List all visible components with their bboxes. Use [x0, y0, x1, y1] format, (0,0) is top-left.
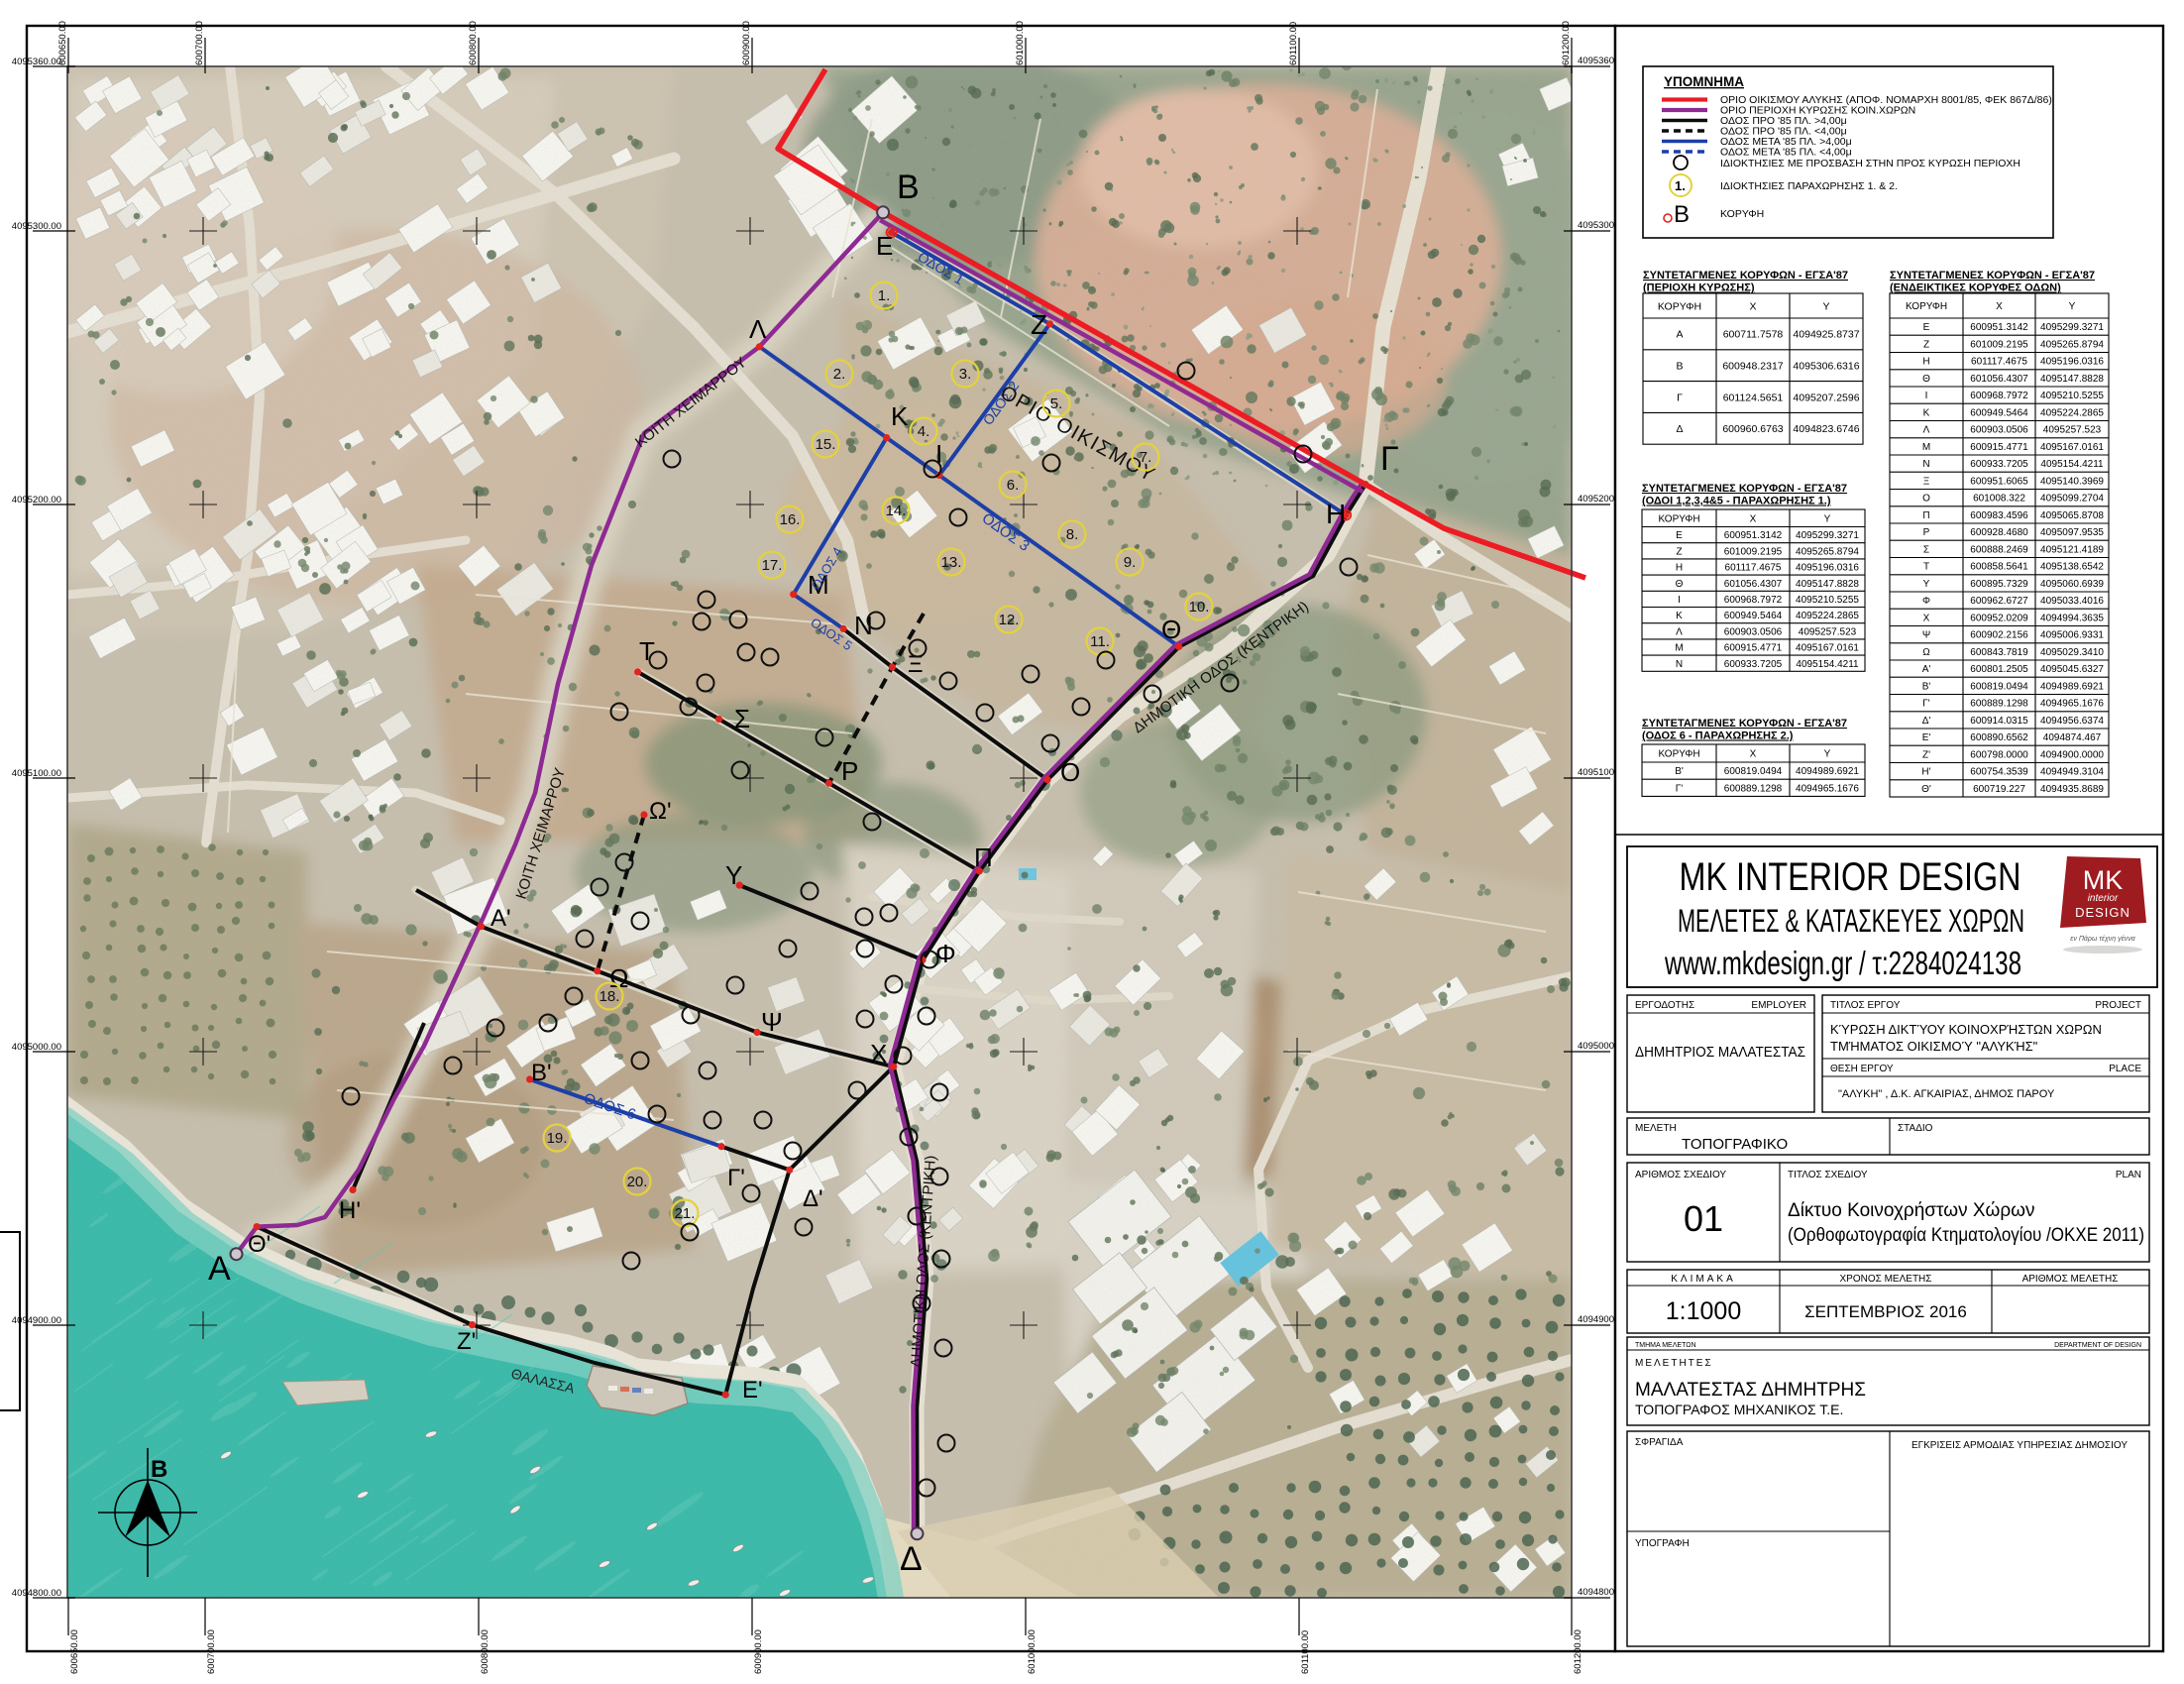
svg-text:600754.3539: 600754.3539 [1970, 767, 2028, 778]
svg-text:6.: 6. [1007, 477, 1020, 494]
svg-text:Y: Y [1822, 300, 1829, 312]
svg-text:Γ': Γ' [1676, 783, 1684, 794]
svg-text:MK INTERIOR DESIGN: MK INTERIOR DESIGN [1680, 855, 2021, 899]
svg-text:εν Πάρω τέχνη γέννα: εν Πάρω τέχνη γέννα [2070, 935, 2135, 943]
svg-text:Γ: Γ [1677, 392, 1683, 403]
svg-text:Ψ: Ψ [761, 1007, 783, 1037]
svg-text:Ζ: Ζ [1923, 340, 1929, 351]
svg-text:4094823.6746: 4094823.6746 [1793, 423, 1859, 435]
svg-text:600800.00: 600800.00 [480, 1629, 491, 1674]
svg-text:(ΠΕΡΙΟΧΗ ΚΥΡΩΣΗΣ): (ΠΕΡΙΟΧΗ ΚΥΡΩΣΗΣ) [1643, 282, 1755, 294]
svg-text:Β': Β' [1922, 682, 1931, 693]
svg-text:14.: 14. [886, 503, 907, 519]
svg-text:600819.0494: 600819.0494 [1724, 766, 1783, 777]
svg-text:4095099.2704: 4095099.2704 [2040, 494, 2104, 505]
svg-text:3.: 3. [959, 366, 972, 383]
svg-text:4095140.3969: 4095140.3969 [2040, 477, 2104, 488]
svg-text:4095100.00: 4095100.00 [12, 768, 61, 779]
svg-text:Υ: Υ [725, 860, 742, 890]
svg-text:600888.2469: 600888.2469 [1970, 545, 2028, 556]
svg-text:ΜΕΛΕΤΕΣ & ΚΑΤΑΣΚΕΥΕΣ ΧΩΡΩΝ: ΜΕΛΕΤΕΣ & ΚΑΤΑΣΚΕΥΕΣ ΧΩΡΩΝ [1678, 903, 2024, 939]
svg-text:4095210.5255: 4095210.5255 [2040, 391, 2104, 401]
svg-text:Τ: Τ [1923, 562, 1929, 573]
svg-text:Θ: Θ [1922, 374, 1930, 385]
svg-text:600949.5464: 600949.5464 [1970, 408, 2028, 419]
svg-text:4095207.2596: 4095207.2596 [1793, 392, 1859, 403]
svg-text:4095029.3410: 4095029.3410 [2040, 647, 2104, 658]
svg-text:Δ': Δ' [1922, 716, 1931, 727]
svg-text:ΚΟΡΥΦΗ: ΚΟΡΥΦΗ [1720, 208, 1764, 220]
svg-text:600895.7329: 600895.7329 [1970, 579, 2028, 590]
svg-text:600819.0494: 600819.0494 [1970, 682, 2028, 693]
svg-text:Ε: Ε [1676, 530, 1683, 541]
svg-text:Y: Y [1824, 513, 1831, 524]
svg-text:ΣΕΠΤΕΜΒΡΙΟΣ 2016: ΣΕΠΤΕΜΒΡΙΟΣ 2016 [1804, 1302, 1967, 1321]
svg-text:PLAN: PLAN [2116, 1170, 2141, 1180]
svg-text:4095224.2865: 4095224.2865 [2040, 408, 2104, 419]
svg-text:Α: Α [208, 1250, 231, 1288]
svg-text:4095033.4016: 4095033.4016 [2040, 596, 2104, 607]
svg-text:ΤΙΤΛΟΣ ΣΧΕΔΙΟΥ: ΤΙΤΛΟΣ ΣΧΕΔΙΟΥ [1788, 1170, 1868, 1180]
svg-text:600900.00: 600900.00 [741, 21, 752, 65]
svg-text:4095154.4211: 4095154.4211 [1796, 659, 1859, 670]
svg-text:Ι: Ι [1925, 391, 1928, 401]
svg-text:"ΑΛΥΚΗ" , Δ.Κ. ΑΓΚΑΙΡΙΑΣ, ΔΗΜΟ: "ΑΛΥΚΗ" , Δ.Κ. ΑΓΚΑΙΡΙΑΣ, ΔΗΜΟΣ ΠΑΡΟΥ [1838, 1088, 2055, 1100]
svg-text:ΤΙΤΛΟΣ ΕΡΓΟΥ: ΤΙΤΛΟΣ ΕΡΓΟΥ [1830, 1000, 1901, 1011]
svg-text:600928.4680: 600928.4680 [1970, 527, 2028, 538]
svg-text:Π: Π [1922, 510, 1929, 521]
svg-text:Ρ: Ρ [841, 756, 858, 786]
svg-text:X: X [1996, 301, 2003, 312]
svg-text:Γ': Γ' [1922, 699, 1930, 710]
svg-text:1.: 1. [1675, 178, 1686, 193]
svg-text:Β': Β' [531, 1060, 552, 1086]
svg-text:4095265.8794: 4095265.8794 [1796, 546, 1859, 557]
svg-text:601117.4675: 601117.4675 [1971, 357, 2027, 368]
svg-text:ΙΔΙΟΚΤΗΣΙΕΣ ΠΑΡΑΧΩΡΗΣΗΣ 1. & 2: ΙΔΙΟΚΤΗΣΙΕΣ ΠΑΡΑΧΩΡΗΣΗΣ 1. & 2. [1720, 180, 1898, 192]
svg-text:601124.5651: 601124.5651 [1723, 392, 1784, 403]
svg-text:600968.7972: 600968.7972 [1724, 595, 1783, 606]
svg-text:MK: MK [2083, 865, 2124, 895]
svg-text:Β': Β' [1675, 766, 1684, 777]
svg-text:4095045.6327: 4095045.6327 [2040, 664, 2104, 675]
svg-text:X: X [1750, 513, 1757, 524]
svg-text:Δ: Δ [900, 1540, 923, 1578]
svg-text:interior: interior [2088, 893, 2119, 904]
svg-text:600719.227: 600719.227 [1973, 784, 2025, 795]
svg-text:17.: 17. [762, 557, 783, 574]
svg-text:Α': Α' [491, 905, 511, 932]
svg-text:18.: 18. [600, 988, 620, 1005]
svg-text:Ξ: Ξ [1923, 477, 1930, 488]
svg-text:4095224.2865: 4095224.2865 [1796, 611, 1859, 621]
svg-text:600983.4596: 600983.4596 [1970, 510, 2028, 521]
svg-text:ΑΡΙΘΜΟΣ ΜΕΛΕΤΗΣ: ΑΡΙΘΜΟΣ ΜΕΛΕΤΗΣ [2022, 1274, 2119, 1285]
svg-text:Ζ': Ζ' [457, 1328, 476, 1355]
svg-text:Ω': Ω' [649, 798, 672, 825]
svg-text:Γ: Γ [1380, 440, 1399, 478]
svg-text:4094965.1676: 4094965.1676 [1796, 783, 1859, 794]
svg-text:4095299.3271: 4095299.3271 [1796, 530, 1859, 541]
svg-text:601009.2195: 601009.2195 [1970, 340, 2028, 351]
svg-text:600960.6763: 600960.6763 [1722, 423, 1783, 435]
svg-text:Θ': Θ' [248, 1231, 271, 1258]
svg-text:600902.2156: 600902.2156 [1970, 630, 2028, 641]
svg-text:600650.00: 600650.00 [69, 1629, 80, 1674]
svg-text:19.: 19. [547, 1130, 568, 1147]
svg-text:600915.4771: 600915.4771 [1724, 643, 1783, 654]
svg-text:4094900.0000: 4094900.0000 [2040, 750, 2104, 761]
svg-text:601056.4307: 601056.4307 [1970, 374, 2028, 385]
svg-text:600952.0209: 600952.0209 [1970, 614, 2028, 624]
svg-text:600711.7578: 600711.7578 [1723, 329, 1784, 341]
svg-text:4094956.6374: 4094956.6374 [2040, 716, 2104, 727]
svg-text:Γ': Γ' [727, 1165, 745, 1191]
svg-text:B: B [151, 1456, 167, 1483]
svg-text:ΥΠΟΓΡΑΦΗ: ΥΠΟΓΡΑΦΗ [1635, 1538, 1690, 1549]
svg-text:4095138.6542: 4095138.6542 [2040, 562, 2104, 573]
svg-text:ΣΥΝΤΕΤΑΓΜΕΝΕΣ ΚΟΡΥΦΩΝ - ΕΓΣΑ'8: ΣΥΝΤΕΤΑΓΜΕΝΕΣ ΚΟΡΥΦΩΝ - ΕΓΣΑ'87 [1890, 270, 2095, 281]
svg-text:600858.5641: 600858.5641 [1970, 562, 2028, 573]
svg-text:4094874.467: 4094874.467 [2043, 732, 2102, 743]
svg-text:11.: 11. [1090, 633, 1110, 650]
svg-text:Φ: Φ [935, 939, 956, 968]
svg-text:600951.6065: 600951.6065 [1970, 477, 2028, 488]
svg-text:ΤΜΉΜΑΤΟΣ ΟΙΚΙΣΜΟΎ "ΑΛΥΚΉΣ": ΤΜΉΜΑΤΟΣ ΟΙΚΙΣΜΟΎ "ΑΛΥΚΉΣ" [1830, 1039, 2038, 1054]
svg-text:ΚΎΡΩΣΗ ΔΙΚΤΎΟΥ ΚΟΙΝΟΧΡΉΣΤΩΝ ΧΩ: ΚΎΡΩΣΗ ΔΙΚΤΎΟΥ ΚΟΙΝΟΧΡΉΣΤΩΝ ΧΩΡΩΝ [1830, 1022, 2102, 1037]
svg-text:Δίκτυο Κοινοχρήστων Χώρων: Δίκτυο Κοινοχρήστων Χώρων [1788, 1200, 2035, 1221]
svg-text:(ΕΝΔΕΙΚΤΙΚΕΣ ΚΟΡΥΦΕΣ ΟΔΩΝ): (ΕΝΔΕΙΚΤΙΚΕΣ ΚΟΡΥΦΕΣ ΟΔΩΝ) [1890, 282, 2061, 294]
svg-text:Π: Π [974, 842, 993, 872]
svg-text:Ψ: Ψ [1922, 630, 1930, 641]
svg-text:Ρ: Ρ [1923, 527, 1930, 538]
svg-text:4095060.6939: 4095060.6939 [2040, 579, 2104, 590]
svg-text:Ζ: Ζ [1676, 546, 1682, 557]
svg-text:Ο: Ο [1060, 757, 1080, 787]
svg-text:601100.00: 601100.00 [1300, 1630, 1311, 1674]
svg-text:Σ: Σ [734, 704, 750, 733]
svg-text:600948.2317: 600948.2317 [1722, 361, 1783, 373]
svg-text:4094800.00: 4094800.00 [12, 1588, 61, 1599]
svg-text:4095167.0161: 4095167.0161 [2040, 442, 2104, 453]
svg-text:DESIGN: DESIGN [2075, 905, 2130, 920]
svg-text:Θ: Θ [1676, 579, 1684, 590]
svg-text:2.: 2. [833, 366, 846, 383]
svg-text:Κ: Κ [1923, 408, 1930, 419]
svg-text:4095299.3271: 4095299.3271 [2040, 322, 2104, 333]
svg-text:15.: 15. [816, 436, 836, 453]
svg-text:4094925.8737: 4094925.8737 [1793, 329, 1859, 341]
svg-text:600933.7205: 600933.7205 [1724, 659, 1783, 670]
svg-text:Ν: Ν [1676, 659, 1683, 670]
svg-text:Κ: Κ [891, 401, 909, 431]
svg-text:600933.7205: 600933.7205 [1970, 459, 2028, 470]
svg-text:EMPLOYER: EMPLOYER [1751, 1000, 1806, 1011]
svg-text:Β: Β [1676, 361, 1683, 373]
svg-text:Α: Α [1676, 329, 1683, 341]
svg-text:Η': Η' [339, 1197, 361, 1224]
svg-text:4095200.00: 4095200.00 [12, 495, 61, 505]
svg-text:600903.0506: 600903.0506 [1970, 425, 2028, 436]
svg-text:Δ': Δ' [803, 1185, 823, 1212]
svg-text:ΚΟΡΥΦΗ: ΚΟΡΥΦΗ [1658, 749, 1699, 760]
svg-text:600962.6727: 600962.6727 [1970, 596, 2028, 607]
svg-text:Η': Η' [1921, 767, 1930, 778]
svg-text:600889.1298: 600889.1298 [1970, 699, 2028, 710]
svg-text:X: X [1749, 300, 1756, 312]
svg-text:ΑΡΙΘΜΟΣ ΣΧΕΔΙΟΥ: ΑΡΙΘΜΟΣ ΣΧΕΔΙΟΥ [1635, 1170, 1726, 1180]
svg-text:B: B [1674, 201, 1690, 228]
svg-text:ΤΟΠΟΓΡΑΦΟΣ ΜΗΧΑΝΙΚΟΣ Τ.Ε.: ΤΟΠΟΓΡΑΦΟΣ ΜΗΧΑΝΙΚΟΣ Τ.Ε. [1635, 1402, 1843, 1417]
svg-text:600889.1298: 600889.1298 [1724, 783, 1783, 794]
svg-text:8.: 8. [1066, 526, 1079, 543]
svg-text:601000.00: 601000.00 [1015, 21, 1026, 65]
svg-text:Ζ': Ζ' [1922, 750, 1930, 761]
svg-text:600800.00: 600800.00 [468, 21, 479, 65]
svg-text:4095306.6316: 4095306.6316 [1793, 361, 1859, 373]
svg-text:Λ: Λ [749, 314, 767, 344]
svg-text:Β: Β [897, 168, 920, 206]
svg-text:Φ: Φ [1922, 596, 1930, 607]
svg-text:4095121.4189: 4095121.4189 [2040, 545, 2104, 556]
svg-text:Θ: Θ [1161, 615, 1181, 644]
svg-text:Θ': Θ' [1921, 784, 1931, 795]
svg-text:Ε': Ε' [742, 1377, 763, 1403]
svg-text:ΟΔΟΣ ΜΕΤΑ '85 ΠΛ. <4,00μ: ΟΔΟΣ ΜΕΤΑ '85 ΠΛ. <4,00μ [1720, 147, 1852, 159]
svg-text:ΙΔΙΟΚΤΗΣΙΕΣ ΜΕ ΠΡΟΣΒΑΣΗ ΣΤΗΝ Π: ΙΔΙΟΚΤΗΣΙΕΣ ΜΕ ΠΡΟΣΒΑΣΗ ΣΤΗΝ ΠΡΟΣ ΚΥΡΩΣΗ… [1720, 158, 2020, 169]
svg-text:4095196.0316: 4095196.0316 [1796, 563, 1859, 574]
svg-text:600903.0506: 600903.0506 [1724, 626, 1783, 637]
svg-text:4094994.3635: 4094994.3635 [2040, 614, 2104, 624]
svg-text:ΚΟΡΥΦΗ: ΚΟΡΥΦΗ [1658, 300, 1701, 312]
svg-text:601056.4307: 601056.4307 [1724, 579, 1783, 590]
svg-text:(ΟΔΟΣ 6 - ΠΑΡΑΧΩΡΗΣΗΣ 2.): (ΟΔΟΣ 6 - ΠΑΡΑΧΩΡΗΣΗΣ 2.) [1642, 730, 1794, 742]
svg-text:4095210.5255: 4095210.5255 [1796, 595, 1859, 606]
svg-text:4095196.0316: 4095196.0316 [2040, 357, 2104, 368]
svg-text:600700.00: 600700.00 [206, 1629, 217, 1674]
svg-text:4095300.00: 4095300.00 [12, 221, 61, 232]
svg-text:(Ορθοφωτογραφία Κτηματολογίου: (Ορθοφωτογραφία Κτηματολογίου /ΟΚΧΕ 2011… [1788, 1225, 2144, 1246]
svg-text:4095147.8828: 4095147.8828 [1796, 579, 1859, 590]
svg-text:600915.4771: 600915.4771 [1970, 442, 2028, 453]
svg-text:4095006.9331: 4095006.9331 [2040, 630, 2104, 641]
svg-text:ΣΦΡΑΓΙΔΑ: ΣΦΡΑΓΙΔΑ [1635, 1437, 1684, 1448]
svg-text:Λ: Λ [1923, 425, 1930, 436]
svg-text:Ι: Ι [1678, 595, 1681, 606]
svg-text:4095065.8708: 4095065.8708 [2040, 510, 2104, 521]
svg-text:10.: 10. [1189, 599, 1210, 616]
svg-text:Ζ: Ζ [1031, 309, 1047, 340]
svg-text:4095257.523: 4095257.523 [1799, 626, 1857, 637]
svg-text:1:1000: 1:1000 [1666, 1297, 1741, 1325]
svg-text:4094989.6921: 4094989.6921 [2040, 682, 2104, 693]
svg-text:ΜΕΛΕΤΗ: ΜΕΛΕΤΗ [1635, 1123, 1677, 1134]
svg-text:9.: 9. [1124, 554, 1137, 571]
svg-text:601200.00: 601200.00 [1561, 21, 1572, 65]
svg-text:ΕΡΓΟΔΟΤΗΣ: ΕΡΓΟΔΟΤΗΣ [1635, 1000, 1694, 1011]
svg-text:21.: 21. [675, 1205, 696, 1222]
svg-text:ΣΥΝΤΕΤΑΓΜΕΝΕΣ ΚΟΡΥΦΩΝ - ΕΓΣΑ'8: ΣΥΝΤΕΤΑΓΜΕΝΕΣ ΚΟΡΥΦΩΝ - ΕΓΣΑ'87 [1642, 483, 1847, 495]
svg-text:PLACE: PLACE [2109, 1064, 2141, 1074]
svg-text:600900.00: 600900.00 [753, 1629, 764, 1674]
svg-text:Η: Η [1326, 499, 1346, 529]
svg-text:13.: 13. [941, 554, 962, 571]
svg-text:ΚΟΡΥΦΗ: ΚΟΡΥΦΗ [1906, 301, 1947, 312]
svg-text:01: 01 [1684, 1198, 1723, 1239]
svg-text:4094900.00: 4094900.00 [12, 1315, 61, 1326]
svg-text:4094935.8689: 4094935.8689 [2040, 784, 2104, 795]
svg-text:Ε: Ε [876, 231, 893, 261]
svg-text:4094949.3104: 4094949.3104 [2040, 767, 2104, 778]
svg-text:601117.4675: 601117.4675 [1725, 563, 1782, 574]
svg-text:1.: 1. [878, 287, 891, 304]
svg-text:ΣΥΝΤΕΤΑΓΜΕΝΕΣ ΚΟΡΥΦΩΝ - ΕΓΣΑ'8: ΣΥΝΤΕΤΑΓΜΕΝΕΣ ΚΟΡΥΦΩΝ - ΕΓΣΑ'87 [1642, 718, 1847, 730]
svg-text:ΜΑΛΑΤΕΣΤΑΣ ΔΗΜΗΤΡΗΣ: ΜΑΛΑΤΕΣΤΑΣ ΔΗΜΗΤΡΗΣ [1635, 1380, 1866, 1401]
svg-text:600949.5464: 600949.5464 [1724, 611, 1783, 621]
svg-text:4095360.00: 4095360.00 [12, 56, 61, 67]
svg-text:601009.2195: 601009.2195 [1724, 546, 1783, 557]
svg-text:Σ: Σ [1923, 545, 1929, 556]
svg-text:Λ: Λ [1676, 626, 1683, 637]
svg-text:ΘΕΣΗ ΕΡΓΟΥ: ΘΕΣΗ ΕΡΓΟΥ [1830, 1064, 1894, 1074]
svg-text:ΕΓΚΡΙΣΕΙΣ ΑΡΜΟΔΙΑΣ ΥΠΗΡΕΣΙΑΣ Δ: ΕΓΚΡΙΣΕΙΣ ΑΡΜΟΔΙΑΣ ΥΠΗΡΕΣΙΑΣ ΔΗΜΟΣΙΟΥ [1911, 1440, 2128, 1451]
svg-text:Κ: Κ [1676, 611, 1683, 621]
svg-text:Δ: Δ [1676, 423, 1683, 435]
svg-text:600951.3142: 600951.3142 [1970, 322, 2028, 333]
svg-text:4094965.1676: 4094965.1676 [2040, 699, 2104, 710]
svg-text:600968.7972: 600968.7972 [1970, 391, 2028, 401]
svg-text:4095154.4211: 4095154.4211 [2040, 459, 2104, 470]
svg-text:4095257.523: 4095257.523 [2043, 425, 2102, 436]
svg-text:4095167.0161: 4095167.0161 [1796, 643, 1859, 654]
svg-text:600700.00: 600700.00 [194, 21, 205, 65]
svg-text:Υ: Υ [1923, 579, 1930, 590]
svg-text:16.: 16. [780, 511, 801, 528]
svg-text:601100.00: 601100.00 [1288, 22, 1299, 65]
svg-text:ΜΕΛΕΤΗΤΕΣ: ΜΕΛΕΤΗΤΕΣ [1635, 1358, 1713, 1369]
svg-text:12.: 12. [999, 612, 1020, 628]
svg-text:4095147.8828: 4095147.8828 [2040, 374, 2104, 385]
svg-text:Τ: Τ [639, 636, 655, 666]
svg-text:(ΟΔΟΙ 1,2,3,4&5 - ΠΑΡΑΧΩΡΗΣΗΣ: (ΟΔΟΙ 1,2,3,4&5 - ΠΑΡΑΧΩΡΗΣΗΣ 1.) [1642, 496, 1831, 507]
svg-text:5.: 5. [1050, 395, 1063, 412]
svg-text:ΧΡΟΝΟΣ ΜΕΛΕΤΗΣ: ΧΡΟΝΟΣ ΜΕΛΕΤΗΣ [1840, 1274, 1932, 1285]
svg-text:Η: Η [1922, 357, 1929, 368]
svg-text:PROJECT: PROJECT [2095, 1000, 2141, 1011]
svg-text:ΤΟΠΟΓΡΑΦΙΚΟ: ΤΟΠΟΓΡΑΦΙΚΟ [1682, 1136, 1788, 1153]
svg-text:4095265.8794: 4095265.8794 [2040, 340, 2104, 351]
svg-text:601200.00: 601200.00 [1573, 1629, 1583, 1674]
svg-text:600843.7819: 600843.7819 [1970, 647, 2028, 658]
svg-text:Ο: Ο [1922, 494, 1930, 505]
svg-text:Χ: Χ [1923, 614, 1930, 624]
svg-text:600801.2505: 600801.2505 [1970, 664, 2028, 675]
svg-text:600890.6562: 600890.6562 [1970, 732, 2028, 743]
svg-text:4095097.9535: 4095097.9535 [2040, 527, 2104, 538]
svg-text:ΤΜΗΜΑ ΜΕΛΕΤΩΝ: ΤΜΗΜΑ ΜΕΛΕΤΩΝ [1635, 1342, 1696, 1349]
svg-text:600798.0000: 600798.0000 [1970, 750, 2028, 761]
svg-text:601000.00: 601000.00 [1027, 1629, 1037, 1674]
svg-text:Ε': Ε' [1922, 732, 1931, 743]
svg-text:600951.3142: 600951.3142 [1724, 530, 1783, 541]
svg-text:7.: 7. [1140, 449, 1152, 466]
svg-text:Μ: Μ [1675, 643, 1683, 654]
svg-text:20.: 20. [627, 1174, 648, 1190]
svg-text:4094989.6921: 4094989.6921 [1796, 766, 1859, 777]
svg-text:ΣΥΝΤΕΤΑΓΜΕΝΕΣ ΚΟΡΥΦΩΝ - ΕΓΣΑ'8: ΣΥΝΤΕΤΑΓΜΕΝΕΣ ΚΟΡΥΦΩΝ - ΕΓΣΑ'87 [1643, 270, 1848, 281]
svg-text:ΚΛΙΜΑΚΑ: ΚΛΙΜΑΚΑ [1671, 1274, 1735, 1285]
svg-text:ΔΗΜΗΤΡΙΟΣ ΜΑΛΑΤΕΣΤΑΣ: ΔΗΜΗΤΡΙΟΣ ΜΑΛΑΤΕΣΤΑΣ [1635, 1044, 1805, 1061]
svg-text:601008.322: 601008.322 [1973, 494, 2025, 505]
svg-text:Y: Y [2069, 301, 2076, 312]
svg-text:ΥΠΟΜΝΗΜΑ: ΥΠΟΜΝΗΜΑ [1664, 74, 1744, 89]
svg-text:DEPARTMENT OF DESIGN: DEPARTMENT OF DESIGN [2054, 1342, 2141, 1349]
svg-text:ΚΟΡΥΦΗ: ΚΟΡΥΦΗ [1658, 513, 1699, 524]
svg-text:Y: Y [1824, 749, 1831, 760]
svg-text:Α': Α' [1922, 664, 1931, 675]
svg-text:Ν: Ν [1922, 459, 1929, 470]
svg-text:Χ: Χ [870, 1039, 887, 1068]
svg-text:Η: Η [1676, 563, 1683, 574]
svg-text:Ε: Ε [1923, 322, 1930, 333]
svg-text:X: X [1750, 749, 1757, 760]
svg-text:4.: 4. [918, 423, 930, 440]
svg-text:Μ: Μ [1922, 442, 1930, 453]
svg-text:4095000.00: 4095000.00 [12, 1042, 61, 1053]
svg-text:600914.0315: 600914.0315 [1970, 716, 2028, 727]
svg-text:Ω: Ω [1922, 647, 1930, 658]
svg-text:ΣΤΑΔΙΟ: ΣΤΑΔΙΟ [1898, 1123, 1933, 1134]
svg-text:www.mkdesign.gr / τ:2284024138: www.mkdesign.gr / τ:2284024138 [1664, 945, 2021, 981]
